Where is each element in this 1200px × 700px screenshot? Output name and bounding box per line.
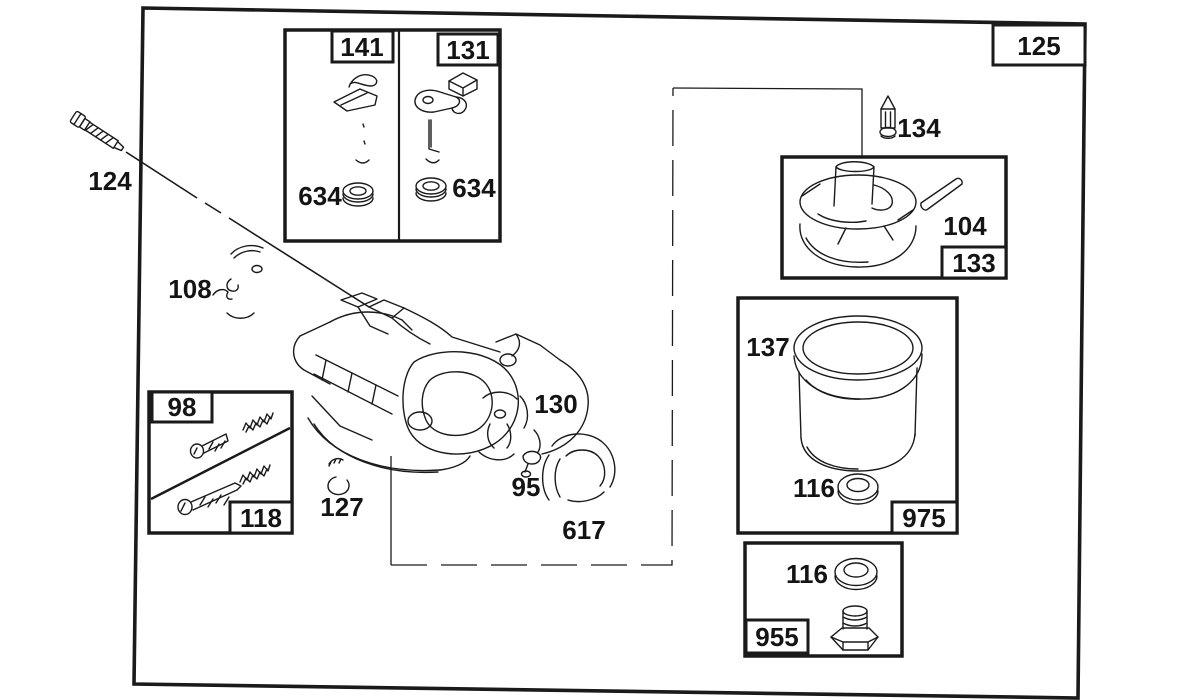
choke-lever-108-drawing xyxy=(213,246,263,319)
callout-108: 108 xyxy=(168,274,211,304)
callout-141: 141 xyxy=(340,32,383,62)
kit-98-118-divider xyxy=(151,428,290,499)
callout-137: 137 xyxy=(746,332,789,362)
kit-box-98-118: 98 118 xyxy=(149,392,292,533)
washer-116b-drawing xyxy=(835,559,877,590)
callout-116b: 116 xyxy=(786,559,828,589)
carburetor-body-drawing xyxy=(294,293,589,472)
washer-116a-drawing xyxy=(838,474,878,504)
callout-133: 133 xyxy=(952,248,995,278)
callout-104: 104 xyxy=(943,211,987,241)
main-assembly-border xyxy=(134,8,1085,698)
callout-975: 975 xyxy=(902,503,945,533)
callout-group-125: 125 xyxy=(993,25,1085,65)
parts-diagram-page: 141 131 133 xyxy=(0,0,1200,700)
seal-127-drawing xyxy=(328,459,349,495)
callout-98: 98 xyxy=(168,392,197,422)
callout-118: 118 xyxy=(240,503,282,533)
inlet-needle-134-drawing xyxy=(880,96,896,138)
callout-125: 125 xyxy=(1017,31,1060,61)
callout-617: 617 xyxy=(562,515,605,545)
callout-134: 134 xyxy=(897,113,941,143)
callout-127: 127 xyxy=(320,492,363,522)
seal-617-drawing xyxy=(543,434,615,502)
callout-634b: 634 xyxy=(452,173,496,203)
callout-124: 124 xyxy=(88,166,132,196)
callout-95: 95 xyxy=(512,472,541,502)
callout-634a: 634 xyxy=(298,181,342,211)
float-bowl-drawing xyxy=(794,316,922,471)
callout-130: 130 xyxy=(534,389,577,419)
callout-116a: 116 xyxy=(793,473,835,503)
exploded-parts-diagram: 141 131 133 xyxy=(0,0,1200,700)
bolt-124-drawing xyxy=(70,111,127,154)
callout-955: 955 xyxy=(755,622,798,652)
callout-131: 131 xyxy=(446,35,489,65)
float-pin-104-drawing xyxy=(921,178,962,210)
bowl-nut-drawing xyxy=(831,606,878,650)
group-boundary xyxy=(391,88,862,565)
float-drawing xyxy=(800,162,916,267)
alignment-line xyxy=(126,152,369,307)
